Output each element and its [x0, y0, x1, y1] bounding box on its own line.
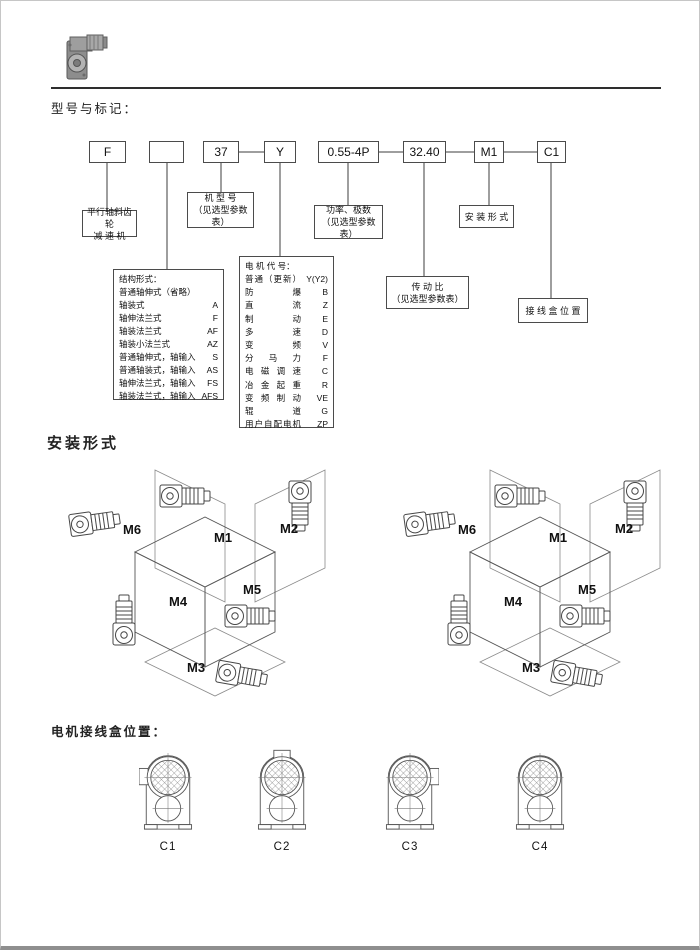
code-box-ratio: 32.40 [403, 141, 446, 163]
junction-diagram-c2 [253, 746, 311, 838]
structure-list-row: 普通轴伸式（省略） [119, 286, 218, 299]
structure-row-code: AZ [207, 338, 218, 351]
mounting-heading: 安装形式 [47, 432, 119, 453]
code-box-junction: C1 [537, 141, 566, 163]
motor-list-row: 变频制动 VE [245, 392, 328, 405]
structure-list-row: 轴装式 A [119, 299, 218, 312]
structure-row-name: 轴装式 [119, 299, 145, 312]
callout-power: 功率、极数 （见选型参数表） [314, 205, 383, 239]
mounting-diagram-right [394, 456, 686, 714]
motor-row-name: 防爆 [245, 286, 301, 299]
motor-row-name: 分马力 [245, 352, 301, 365]
motor-list-row: 电磁调速 C [245, 365, 328, 378]
code-box-size: 37 [203, 141, 239, 163]
junction-box-tab-right [430, 768, 439, 784]
junction-label-c3: C3 [381, 841, 439, 853]
callout-model-line1: 机 型 号 [204, 192, 236, 204]
motor-row-name: 多速 [245, 326, 301, 339]
structure-row-name: 轴伸法兰式，轴输入 [119, 377, 196, 390]
motor-list-rows: 普通（更新） Y(Y2) 防爆 B 直流 Z 制动 E [245, 273, 328, 431]
motor-row-code: E [322, 313, 328, 326]
junction-box-tab-left [139, 768, 148, 784]
motor-row-code: B [322, 286, 328, 299]
junction-diagram-c3 [381, 746, 439, 838]
callout-ratio: 传 动 比 （见选型参数表） [386, 276, 469, 309]
structure-row-name: 轴装法兰式 [119, 325, 162, 338]
junction-heading: 电机接线盒位置： [51, 721, 167, 740]
structure-row-name: 普通轴装式，轴输入 [119, 364, 196, 377]
junction-label-c2: C2 [253, 841, 311, 853]
callout-power-line1: 功率、极数 [326, 204, 371, 216]
code-box-mounting: M1 [474, 141, 504, 163]
junction-diagram-c4 [511, 746, 569, 838]
motor-list-row: 用户自配电机 ZP [245, 418, 328, 431]
motor-row-name: 变频制动 [245, 392, 301, 405]
motor-list-row: 辊道 G [245, 405, 328, 418]
structure-row-name: 普通轴伸式（省略） [119, 286, 196, 299]
motor-row-name: 普通（更新） [245, 273, 301, 286]
structure-row-name: 轴伸法兰式 [119, 312, 162, 325]
motor-row-code: ZP [317, 418, 328, 431]
motor-list-row: 变频 V [245, 339, 328, 352]
motor-row-code: VE [317, 392, 328, 405]
callout-mounting-label: 安 装 形 式 [465, 211, 509, 223]
motor-row-code: G [321, 405, 328, 418]
motor-row-name: 制动 [245, 313, 301, 326]
motor-row-code: V [322, 339, 328, 352]
mounting-diagram-left [59, 456, 351, 714]
structure-list-row: 轴装法兰式，轴输入 AFS [119, 390, 218, 403]
motor-row-name: 电磁调速 [245, 365, 301, 378]
structure-row-code: FS [207, 377, 218, 390]
callout-power-line2: （见选型参数表） [315, 216, 382, 240]
structure-list-row: 轴装小法兰式 AZ [119, 338, 218, 351]
motor-row-code: Z [323, 299, 328, 312]
structure-row-code: F [213, 312, 218, 325]
structure-list-row: 普通轴装式，轴输入 AS [119, 364, 218, 377]
motor-row-code: D [322, 326, 328, 339]
callout-reducer-line2: 减 速 机 [93, 230, 125, 242]
callout-model-line2: （见选型参数表） [188, 204, 253, 228]
motor-list-row: 普通（更新） Y(Y2) [245, 273, 328, 286]
structure-list-title: 结构形式： [119, 273, 218, 286]
structure-row-name: 轴装法兰式，轴输入 [119, 390, 196, 403]
callout-reducer-line1: 平行轴斜齿轮 [83, 206, 136, 230]
motor-row-code: C [322, 365, 328, 378]
motor-list-row: 分马力 F [245, 352, 328, 365]
motor-code-list: 电 机 代 号： 普通（更新） Y(Y2) 防爆 B 直流 Z [239, 256, 334, 428]
motor-row-code: Y(Y2) [306, 273, 328, 286]
structure-row-name: 普通轴伸式，轴输入 [119, 351, 196, 364]
motor-row-name: 用户自配电机 [245, 418, 301, 431]
callout-model: 机 型 号 （见选型参数表） [187, 192, 254, 228]
structure-list-row: 轴伸法兰式 F [119, 312, 218, 325]
callout-ratio-line2: （见选型参数表） [391, 293, 463, 305]
structure-row-code: AS [207, 364, 218, 377]
structure-row-code: AF [207, 325, 218, 338]
structure-list-row: 普通轴伸式，轴输入 S [119, 351, 218, 364]
motor-list-title: 电 机 代 号： [245, 260, 328, 273]
junction-diagram-c1 [139, 746, 197, 838]
callout-mounting: 安 装 形 式 [459, 205, 514, 228]
structure-list-row: 轴装法兰式 AF [119, 325, 218, 338]
code-box-structure [149, 141, 184, 163]
structure-row-code: A [212, 299, 218, 312]
motor-list-row: 直流 Z [245, 299, 328, 312]
callout-junction-label: 接 线 盒 位 置 [525, 305, 580, 317]
catalog-page: 型号与标记： F 37 Y 0.55-4P 32.40 M1 C1 平行轴斜齿轮… [0, 0, 700, 950]
motor-row-code: R [322, 379, 328, 392]
code-box-motor: Y [264, 141, 296, 163]
motor-list-row: 制动 E [245, 313, 328, 326]
code-box-series: F [89, 141, 126, 163]
structure-row-code: AFS [201, 390, 218, 403]
motor-list-row: 冶金起重 R [245, 379, 328, 392]
junction-label-c1: C1 [139, 841, 197, 853]
structure-code-list: 结构形式： 普通轴伸式（省略） 轴装式 A 轴伸法兰式 F [113, 269, 224, 400]
callout-reducer: 平行轴斜齿轮 减 速 机 [82, 210, 137, 237]
structure-row-name: 轴装小法兰式 [119, 338, 170, 351]
code-box-power: 0.55-4P [318, 141, 379, 163]
structure-row-code: S [212, 351, 218, 364]
motor-list-row: 多速 D [245, 326, 328, 339]
callout-junction: 接 线 盒 位 置 [518, 298, 588, 323]
junction-label-c4: C4 [511, 841, 569, 853]
motor-row-name: 直流 [245, 299, 301, 312]
structure-list-row: 轴伸法兰式，轴输入 FS [119, 377, 218, 390]
structure-list-rows: 普通轴伸式（省略） 轴装式 A 轴伸法兰式 F 轴装法兰式 AF [119, 286, 218, 403]
motor-row-name: 变频 [245, 339, 301, 352]
motor-list-row: 防爆 B [245, 286, 328, 299]
callout-ratio-line1: 传 动 比 [411, 281, 443, 293]
motor-row-code: F [323, 352, 328, 365]
motor-row-name: 辊道 [245, 405, 301, 418]
motor-row-name: 冶金起重 [245, 379, 301, 392]
